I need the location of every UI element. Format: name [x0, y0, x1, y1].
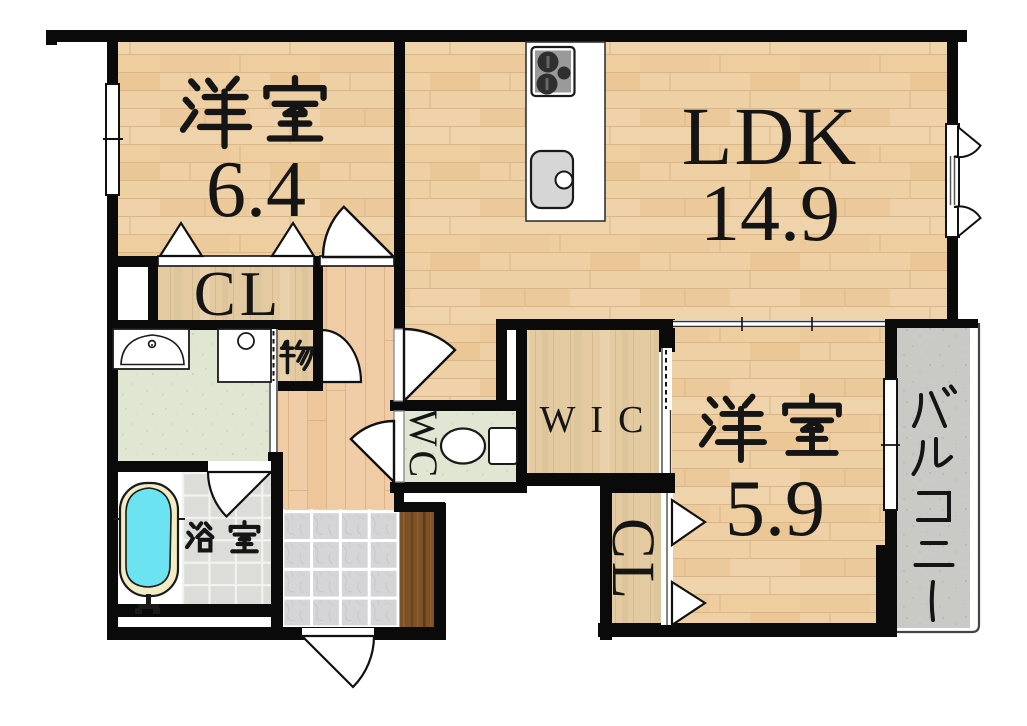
svg-text:WIC: WIC	[540, 399, 659, 441]
svg-text:6.4: 6.4	[206, 146, 306, 234]
svg-text:14.9: 14.9	[700, 170, 840, 258]
svg-text:5.9: 5.9	[725, 465, 825, 553]
svg-text:LDK: LDK	[682, 90, 859, 182]
svg-text:WC: WC	[401, 409, 446, 481]
svg-text:CL: CL	[599, 518, 666, 602]
svg-text:CL: CL	[194, 259, 283, 329]
